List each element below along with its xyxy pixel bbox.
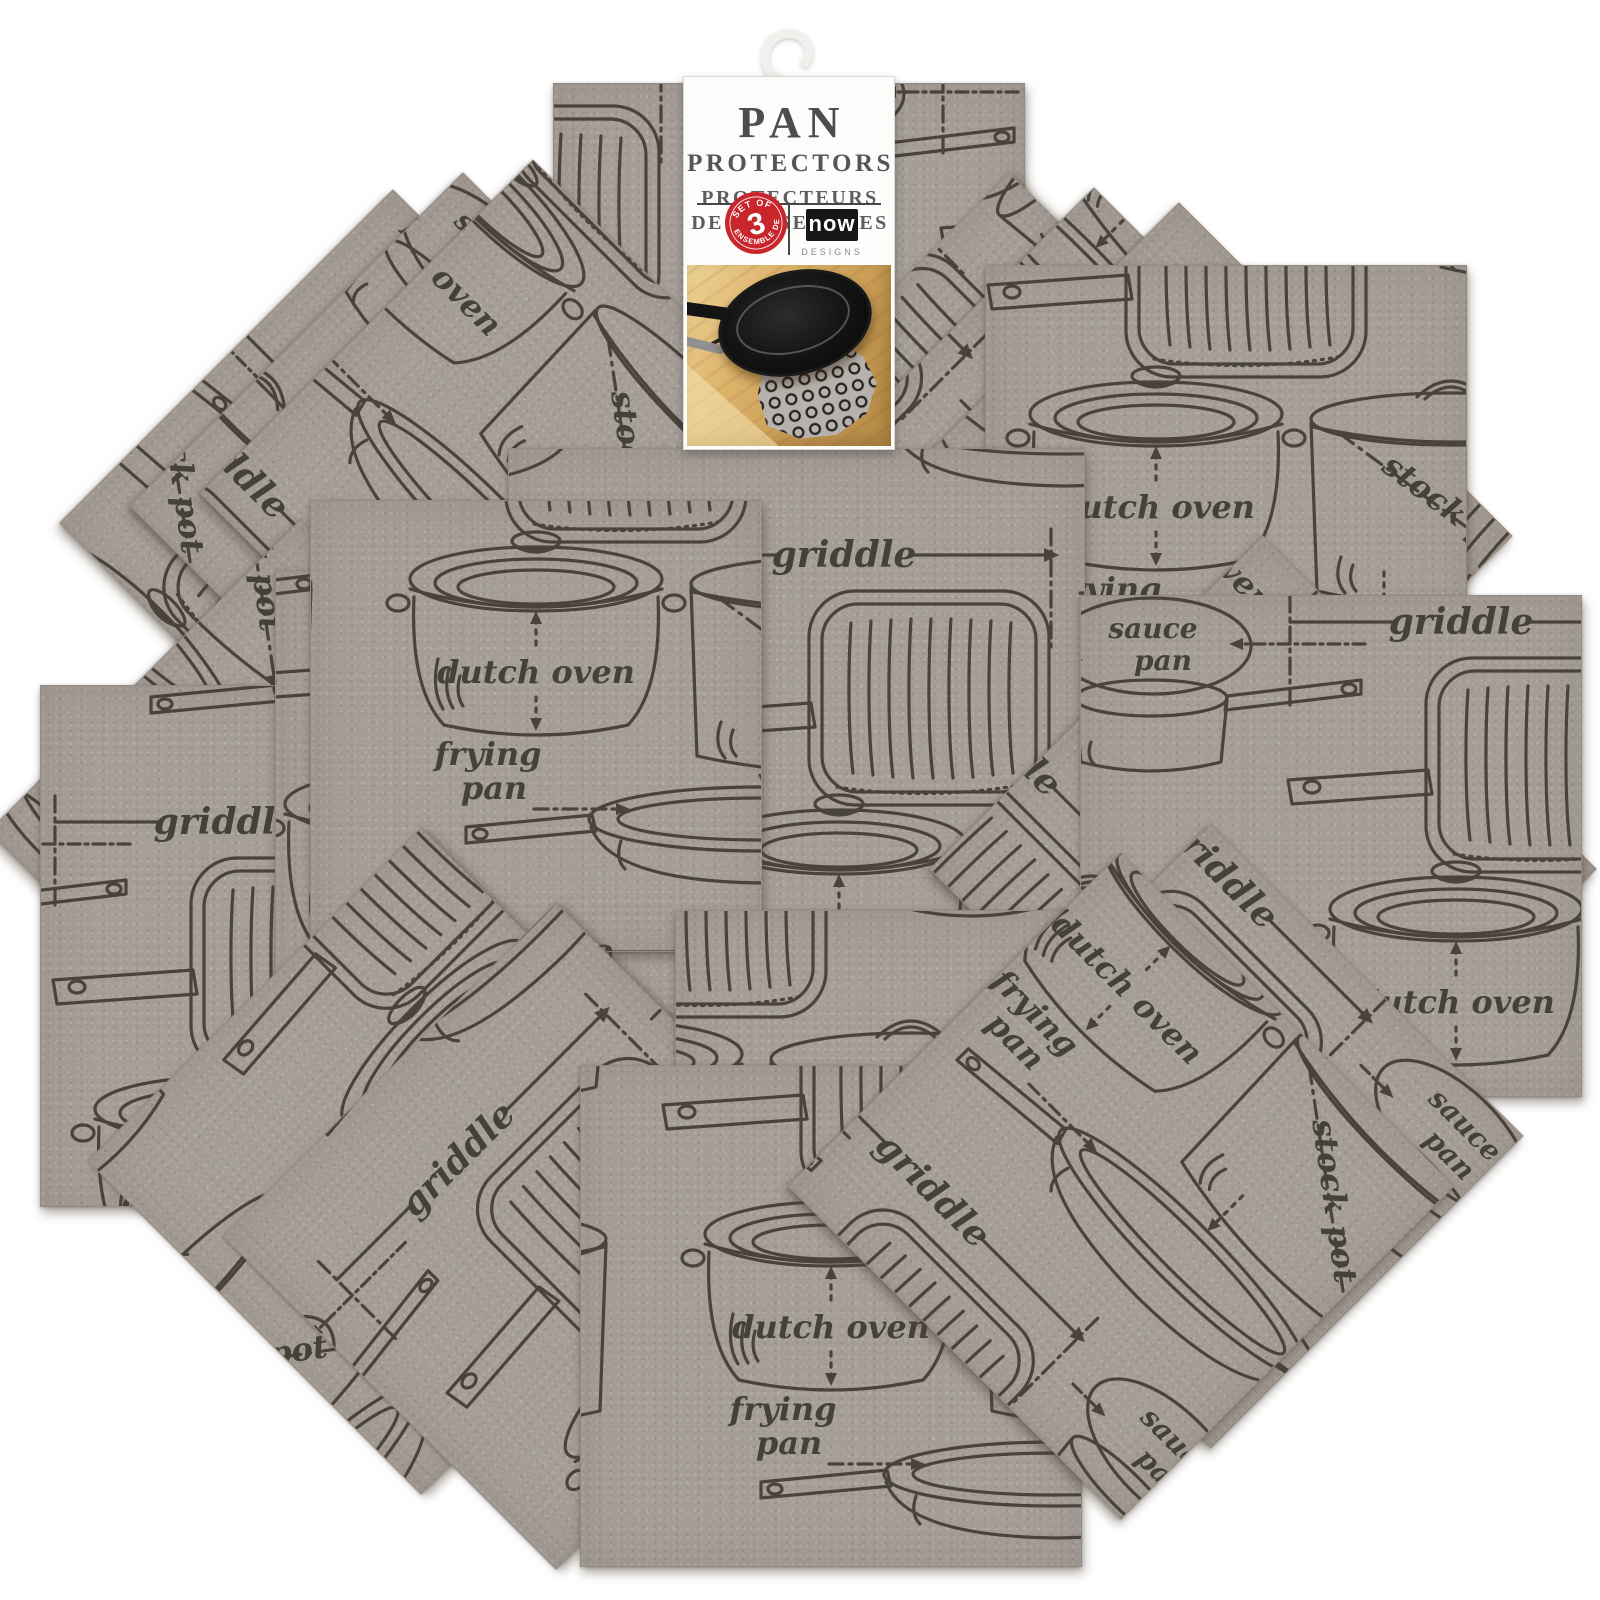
product-photo-stage: griddle	[0, 0, 1600, 1600]
tag-title-en2: PROTECTORS	[684, 150, 894, 178]
hang-tag: PAN PROTECTORS PROTECTEURS DE CASSEROLES…	[683, 14, 893, 448]
now-designs-subtitle: DESIGNS	[792, 247, 872, 257]
now-designs-logo: now	[806, 209, 858, 241]
tag-title-en: PAN	[684, 97, 894, 148]
tag-card: PAN PROTECTORS PROTECTEURS DE CASSEROLES…	[683, 76, 895, 450]
hang-hook-icon	[748, 14, 828, 84]
tag-product-photo	[687, 265, 891, 446]
